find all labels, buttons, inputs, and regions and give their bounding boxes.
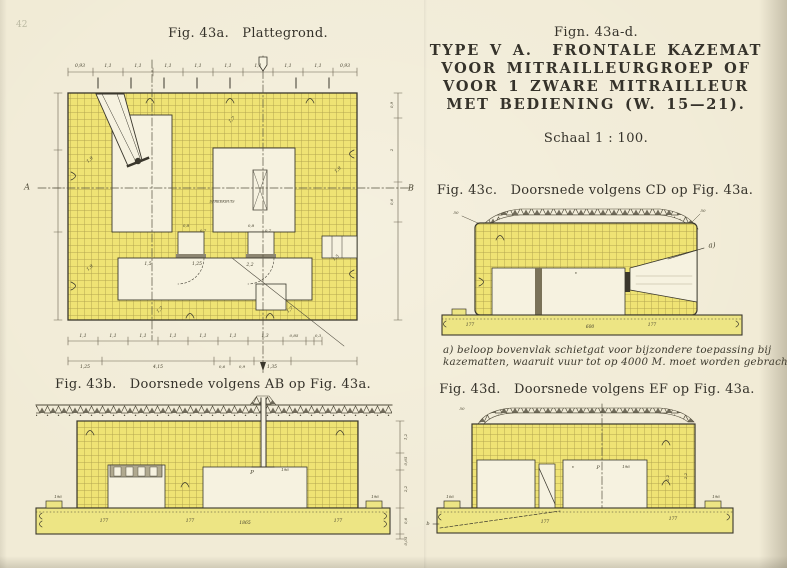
vent-slot (138, 467, 145, 476)
door-partition (535, 268, 542, 315)
fig43a-plan-drawing (38, 56, 410, 374)
dimension-lines (54, 93, 62, 320)
ghost-page-number: 42 (16, 20, 27, 30)
surface-block (452, 309, 466, 315)
plan-entrance (322, 236, 357, 258)
note-a-line1: a) beloop bovenvlak schietgat voor bijzo… (443, 344, 771, 357)
surface-block (705, 501, 721, 508)
page-bottom-shadow (0, 556, 787, 568)
embrasure-throat (625, 272, 630, 292)
dimension-lines (68, 357, 357, 365)
interior-room-right (203, 467, 307, 508)
title-line-4: MET BEDIENING (W. 15—21). (446, 96, 745, 113)
plan-gun-room (213, 148, 295, 232)
rebar-ticks (98, 78, 329, 88)
dimension-lines (68, 68, 357, 76)
door-threshold (176, 254, 206, 258)
periscope-shaft (261, 398, 266, 467)
fig43d-section-drawing (433, 404, 733, 533)
fig43d-caption: Fig. 43d. Doorsnede volgens EF op Fig. 4… (439, 382, 754, 397)
note-a-line2: kazematten, waaruit vuur tot op 4000 M. … (443, 356, 787, 369)
interior-room-middle (563, 460, 647, 508)
surface-block (444, 501, 460, 508)
title-line-3: VOOR 1 ZWARE MITRAILLEUR (443, 78, 749, 95)
section-marker-top (259, 57, 267, 71)
dimension-lines (68, 337, 322, 345)
gun-pivot (135, 158, 141, 164)
fig43c-caption: Fig. 43c. Doorsnede volgens CD op Fig. 4… (437, 183, 753, 198)
scanned-page: 0,931,11,11,11,11,11,11,11,10,931,11,11,… (0, 0, 787, 568)
vent-slot (126, 467, 133, 476)
section-marker-bottom (260, 362, 266, 371)
dimension-lines (394, 93, 402, 320)
vent-slot (114, 467, 121, 476)
fig43b-section-drawing (36, 396, 404, 539)
figure-group-number: Fign. 43a-d. (554, 25, 638, 40)
title-line-2: VOOR MITRAILLEURGROEP OF (441, 60, 750, 77)
dimension-lines (396, 421, 404, 539)
earth-cover (36, 405, 392, 416)
title-line-1: TYPE V A. FRONTALE KAZEMAT (430, 42, 762, 59)
door-threshold (246, 254, 276, 258)
interior-room (492, 268, 625, 315)
page-left-edge-shadow (0, 0, 7, 568)
interior-room-left (477, 460, 535, 508)
fig43c-section-drawing (442, 209, 742, 335)
vent-slot (150, 467, 157, 476)
earth-cover (478, 408, 694, 424)
page-gutter-shadow (759, 0, 787, 568)
surface-block (46, 501, 62, 508)
page-fold-crease (424, 0, 427, 568)
fig43b-caption: Fig. 43b. Doorsnede volgens AB op Fig. 4… (55, 377, 371, 392)
surface-block (366, 501, 382, 508)
floor-slab (442, 315, 742, 335)
scale-label: Schaal 1 : 100. (544, 131, 648, 146)
fig43a-caption: Fig. 43a. Plattegrond. (168, 26, 328, 41)
